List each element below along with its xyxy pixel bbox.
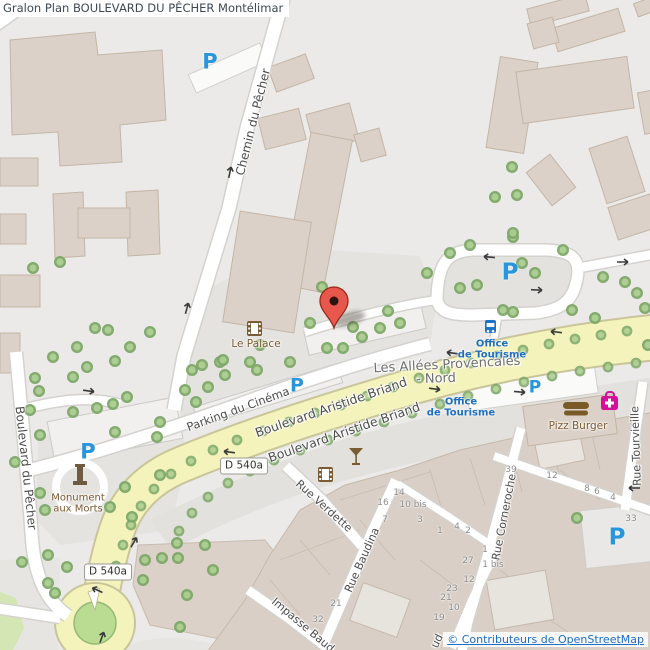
tree-icon: [43, 578, 53, 588]
tree-icon: [28, 263, 38, 273]
tree-icon: [157, 553, 167, 563]
tree-icon: [395, 318, 405, 328]
tree-icon: [623, 327, 631, 335]
tree-icon: [35, 430, 45, 440]
bus-stop-icon: [485, 320, 496, 333]
map-base: [0, 0, 650, 650]
tree-icon: [620, 277, 630, 287]
tree-icon: [246, 467, 254, 475]
tree-icon: [127, 521, 135, 529]
tree-icon: [10, 457, 20, 467]
tree-icon: [182, 590, 192, 600]
tree-icon: [218, 355, 228, 365]
tree-icon: [17, 557, 27, 567]
tree-icon: [572, 513, 582, 523]
tree-icon: [220, 370, 230, 380]
tree-icon: [125, 342, 135, 352]
tree-icon: [150, 485, 158, 493]
tree-icon: [209, 446, 217, 454]
tree-icon: [285, 357, 295, 367]
tree-icon: [436, 400, 444, 408]
tree-icon: [493, 352, 501, 360]
osm-attribution-link[interactable]: © Contributeurs de OpenStreetMap: [443, 632, 648, 647]
tree-icon: [119, 541, 127, 549]
tree-icon: [508, 228, 518, 238]
tree-icon: [548, 372, 556, 380]
tree-icon: [208, 565, 218, 575]
tree-icon: [175, 527, 183, 535]
tree-icon: [255, 340, 265, 350]
tree-icon: [508, 307, 518, 317]
tree-icon: [445, 248, 455, 258]
tree-icon: [467, 359, 475, 367]
tree-icon: [530, 268, 540, 278]
tree-icon: [389, 383, 397, 391]
tree-icon: [338, 343, 348, 353]
tree-icon: [72, 342, 82, 352]
tree-icon: [187, 457, 195, 465]
tree-icon: [62, 562, 72, 572]
tree-icon: [224, 479, 232, 487]
map-canvas[interactable]: Chemin du PêcherBoulevard du PêcherParki…: [0, 0, 650, 650]
fast-food-icon: [563, 402, 589, 416]
tree-icon: [375, 323, 385, 333]
tree-icon: [172, 538, 182, 548]
tree-icon: [380, 418, 388, 426]
cinema-icon: [247, 321, 262, 336]
tree-icon: [152, 432, 162, 442]
tree-icon: [155, 470, 165, 480]
tree-icon: [632, 359, 640, 367]
tree-icon: [92, 403, 102, 413]
tree-icon: [103, 325, 113, 335]
tree-icon: [175, 622, 185, 632]
tree-icon: [120, 482, 130, 492]
tree-icon: [197, 360, 207, 370]
tree-icon: [112, 562, 120, 570]
cinema-icon: [318, 467, 333, 482]
tree-icon: [324, 436, 332, 444]
tree-icon: [567, 305, 577, 315]
tree-icon: [204, 493, 212, 501]
tree-icon: [259, 427, 267, 435]
tree-icon: [105, 502, 115, 512]
tree-icon: [155, 417, 165, 427]
tree-icon: [188, 509, 196, 517]
tree-icon: [322, 343, 332, 353]
tree-icon: [643, 340, 650, 350]
tree-icon: [383, 306, 393, 316]
tree-icon: [68, 407, 78, 417]
tree-icon: [597, 331, 605, 339]
tree-icon: [34, 386, 44, 396]
tree-icon: [464, 392, 472, 400]
tree-icon: [48, 352, 58, 362]
tree-icon: [545, 340, 553, 348]
tree-icon: [337, 401, 345, 409]
tree-icon: [140, 555, 150, 565]
tree-icon: [82, 362, 92, 372]
tree-icon: [512, 190, 522, 200]
tree-icon: [187, 365, 197, 375]
tree-icon: [352, 427, 360, 435]
tree-icon: [640, 303, 650, 313]
tree-icon: [233, 436, 241, 444]
tree-icon: [498, 305, 508, 315]
tree-icon: [270, 456, 278, 464]
tree-icon: [203, 382, 213, 392]
tree-icon: [422, 268, 432, 278]
tree-icon: [200, 540, 210, 550]
tree-icon: [145, 327, 155, 337]
tree-icon: [472, 280, 482, 290]
tree-icon: [455, 283, 465, 293]
tree-icon: [465, 240, 475, 250]
tree-icon: [632, 288, 642, 298]
tree-icon: [68, 372, 78, 382]
tree-icon: [285, 418, 293, 426]
tree-icon: [50, 588, 60, 598]
tree-icon: [173, 553, 183, 563]
tree-icon: [507, 162, 517, 172]
tree-icon: [55, 257, 65, 267]
tree-icon: [110, 356, 120, 366]
tree-icon: [191, 397, 201, 407]
tree-icon: [598, 272, 608, 282]
tree-icon: [520, 378, 528, 386]
tree-icon: [110, 427, 120, 437]
tree-icon: [363, 392, 371, 400]
tree-icon: [30, 373, 40, 383]
tree-icon: [604, 363, 612, 371]
tree-icon: [296, 446, 304, 454]
tree-icon: [252, 365, 262, 375]
tree-icon: [167, 470, 175, 478]
tree-icon: [590, 313, 600, 323]
tree-icon: [25, 405, 35, 415]
tree-icon: [108, 399, 118, 409]
tree-icon: [357, 332, 367, 342]
tree-icon: [490, 192, 500, 202]
tree-icon: [137, 502, 145, 510]
tree-icon: [305, 318, 315, 328]
tree-icon: [138, 575, 148, 585]
tree-icon: [519, 346, 527, 354]
tree-icon: [571, 335, 579, 343]
tree-icon: [517, 258, 527, 268]
page-title: Gralon Plan BOULEVARD DU PÊCHER Montélim…: [0, 0, 289, 17]
tree-icon: [441, 366, 449, 374]
tree-icon: [90, 323, 100, 333]
tree-icon: [122, 392, 132, 402]
tree-icon: [558, 245, 568, 255]
tree-icon: [43, 550, 53, 560]
tree-icon: [180, 385, 190, 395]
tree-icon: [35, 488, 45, 498]
tree-icon: [492, 385, 500, 393]
tree-icon: [40, 505, 50, 515]
tree-icon: [415, 374, 423, 382]
tree-icon: [311, 409, 319, 417]
tree-icon: [576, 367, 584, 375]
tree-icon: [408, 409, 416, 417]
